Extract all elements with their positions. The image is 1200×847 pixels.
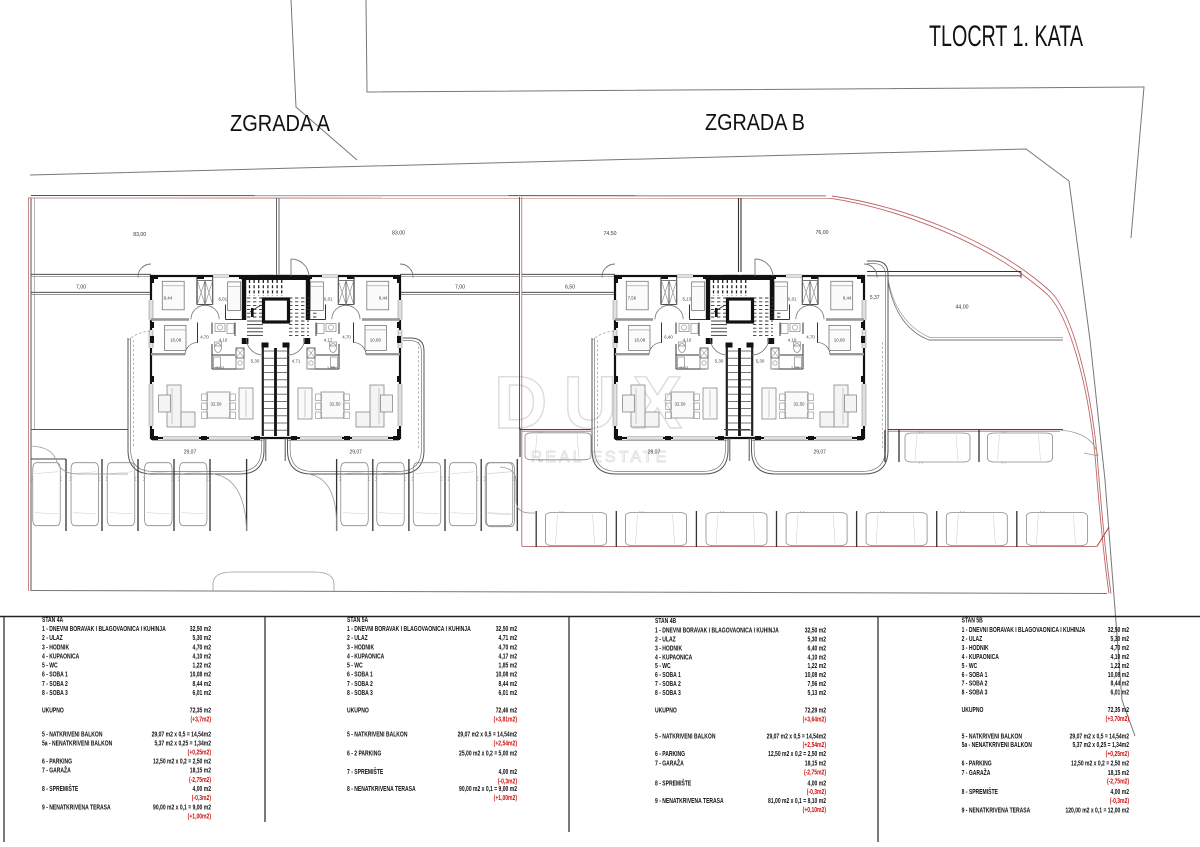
svg-text:32,50 m2: 32,50 m2 [496, 625, 518, 633]
svg-text:4,70: 4,70 [806, 335, 815, 340]
svg-text:10,08: 10,08 [834, 337, 846, 342]
svg-text:44,00: 44,00 [956, 305, 969, 311]
svg-text:3 - HODNIK: 3 - HODNIK [655, 645, 683, 653]
svg-text:7 - SPREMIŠTE: 7 - SPREMIŠTE [347, 767, 383, 776]
svg-text:29,07 m2 x 0,5 = 14,54m2: 29,07 m2 x 0,5 = 14,54m2 [1070, 733, 1130, 741]
svg-text:6 - 2 PARKING: 6 - 2 PARKING [347, 750, 381, 758]
svg-text:18,15 m2: 18,15 m2 [1108, 769, 1130, 777]
svg-text:7 - SOBA 2: 7 - SOBA 2 [655, 680, 681, 688]
svg-text:1 - DNEVNI BORAVAK I BLAGOVAON: 1 - DNEVNI BORAVAK I BLAGOVAONICA I KUHI… [655, 627, 779, 635]
svg-text:4,70: 4,70 [200, 335, 209, 340]
svg-text:5 - NATKRIVENI BALKON: 5 - NATKRIVENI BALKON [962, 733, 1022, 741]
svg-text:6,01: 6,01 [219, 297, 228, 302]
svg-text:32,50: 32,50 [794, 402, 806, 407]
svg-text:18,15 m2: 18,15 m2 [190, 767, 212, 775]
svg-text:(+0,25m2): (+0,25m2) [1106, 750, 1129, 758]
svg-text:(+3,7m2): (+3,7m2) [190, 716, 211, 724]
svg-text:6,01 m2: 6,01 m2 [499, 689, 518, 697]
svg-text:10,08: 10,08 [634, 337, 646, 342]
svg-text:8 - SPREMIŠTE: 8 - SPREMIŠTE [42, 784, 78, 793]
svg-text:4,71: 4,71 [292, 359, 301, 364]
svg-text:81,00 m2 x 0,1 = 8,10 m2: 81,00 m2 x 0,1 = 8,10 m2 [768, 797, 826, 805]
svg-text:7 - GARAŽA: 7 - GARAŽA [42, 766, 71, 775]
svg-text:10,08 m2: 10,08 m2 [190, 671, 212, 679]
svg-text:(+3,70m2): (+3,70m2) [1106, 715, 1129, 723]
svg-text:6 - SOBA 1: 6 - SOBA 1 [655, 671, 681, 679]
svg-text:8 - NENATKRIVENA TERASA: 8 - NENATKRIVENA TERASA [347, 785, 416, 793]
svg-text:UKUPNO: UKUPNO [655, 707, 677, 715]
svg-text:2 - ULAZ: 2 - ULAZ [42, 634, 63, 642]
svg-text:32,50: 32,50 [330, 402, 342, 407]
svg-text:6 - PARKING: 6 - PARKING [962, 760, 992, 768]
svg-text:4,70: 4,70 [342, 335, 351, 340]
svg-text:5,13: 5,13 [683, 297, 692, 302]
svg-text:1,85: 1,85 [327, 366, 336, 371]
svg-text:(-2,75m2): (-2,75m2) [804, 769, 826, 777]
svg-text:29,07 m2 x 0,5 = 14,54m2: 29,07 m2 x 0,5 = 14,54m2 [767, 733, 827, 741]
svg-text:9 - NENATKRIVENA TERASA: 9 - NENATKRIVENA TERASA [655, 797, 724, 805]
svg-text:ZGRADA A: ZGRADA A [230, 110, 331, 136]
svg-text:4,17 m2: 4,17 m2 [499, 653, 518, 661]
svg-text:6 - SOBA 1: 6 - SOBA 1 [962, 671, 988, 679]
svg-text:4,17: 4,17 [324, 338, 333, 343]
svg-text:4,00 m2: 4,00 m2 [1111, 788, 1130, 796]
svg-text:8,44: 8,44 [379, 296, 388, 301]
svg-text:9 - NENATKRIVENA TERASA: 9 - NENATKRIVENA TERASA [42, 804, 111, 812]
svg-text:12,50 m2 x 0,2 = 2,50 m2: 12,50 m2 x 0,2 = 2,50 m2 [153, 758, 211, 766]
svg-text:3 - HODNIK: 3 - HODNIK [347, 644, 375, 652]
svg-text:10,08 m2: 10,08 m2 [1108, 671, 1130, 679]
svg-text:5,37: 5,37 [870, 295, 880, 301]
svg-text:1,22: 1,22 [216, 366, 225, 371]
svg-text:6,01 m2: 6,01 m2 [1111, 689, 1130, 697]
svg-text:6,01: 6,01 [788, 297, 797, 302]
svg-text:7 - SOBA 2: 7 - SOBA 2 [42, 680, 68, 688]
svg-text:7 - GARAŽA: 7 - GARAŽA [962, 768, 991, 777]
svg-text:2 - ULAZ: 2 - ULAZ [962, 635, 983, 643]
svg-text:5 - NATKRIVENI BALKON: 5 - NATKRIVENI BALKON [655, 733, 715, 741]
svg-text:8 - SOBA 3: 8 - SOBA 3 [655, 689, 681, 697]
svg-text:4,00 m2: 4,00 m2 [499, 768, 518, 776]
svg-text:1,22: 1,22 [791, 366, 800, 371]
svg-text:5 - WC: 5 - WC [655, 662, 671, 670]
svg-text:4,10: 4,10 [219, 338, 228, 343]
svg-text:8 - SOBA 3: 8 - SOBA 3 [42, 689, 68, 697]
svg-text:6 - SOBA 1: 6 - SOBA 1 [42, 671, 68, 679]
svg-text:5 - NATKRIVENI BALKON: 5 - NATKRIVENI BALKON [347, 731, 407, 739]
svg-text:72,29 m2: 72,29 m2 [805, 707, 827, 715]
svg-text:6 - PARKING: 6 - PARKING [655, 750, 685, 758]
svg-text:5,30: 5,30 [251, 359, 260, 364]
svg-text:8,44 m2: 8,44 m2 [1111, 680, 1130, 688]
svg-text:5,30 m2: 5,30 m2 [1111, 635, 1130, 643]
svg-text:4,10 m2: 4,10 m2 [1111, 653, 1130, 661]
svg-text:8 - SOBA 3: 8 - SOBA 3 [962, 689, 988, 697]
svg-text:4,10 m2: 4,10 m2 [193, 653, 212, 661]
svg-text:(+3,64m2): (+3,64m2) [803, 716, 826, 724]
svg-text:6 - SOBA 1: 6 - SOBA 1 [347, 671, 373, 679]
svg-text:1,22 m2: 1,22 m2 [193, 662, 212, 670]
svg-text:STAN 4B: STAN 4B [655, 617, 677, 625]
svg-text:(-0,3m2): (-0,3m2) [1110, 797, 1129, 805]
svg-text:7 - GARAŽA: 7 - GARAŽA [655, 759, 684, 768]
svg-text:32,50 m2: 32,50 m2 [190, 625, 212, 633]
svg-text:29,07: 29,07 [349, 450, 362, 456]
svg-text:1,85 m2: 1,85 m2 [499, 662, 518, 670]
svg-text:7,56 m2: 7,56 m2 [808, 680, 827, 688]
svg-text:5,30: 5,30 [715, 359, 724, 364]
svg-text:10,08: 10,08 [170, 337, 182, 342]
svg-text:83,00: 83,00 [133, 232, 146, 238]
svg-text:5 - WC: 5 - WC [347, 662, 363, 670]
svg-text:29,07 m2 x 0,5 = 14,54m2: 29,07 m2 x 0,5 = 14,54m2 [152, 731, 212, 739]
svg-text:6 - PARKING: 6 - PARKING [42, 758, 72, 766]
svg-text:4,70 m2: 4,70 m2 [499, 644, 518, 652]
svg-text:5,37 m2 x 0,25 = 1,34m2: 5,37 m2 x 0,25 = 1,34m2 [154, 740, 211, 748]
svg-text:120,00 m2 x 0,1 = 12,00 m2: 120,00 m2 x 0,1 = 12,00 m2 [1065, 807, 1129, 815]
svg-text:1 - DNEVNI BORAVAK I BLAGOVAON: 1 - DNEVNI BORAVAK I BLAGOVAONICA I KUHI… [42, 625, 166, 633]
svg-text:3 - HODNIK: 3 - HODNIK [962, 644, 990, 652]
svg-text:6,01 m2: 6,01 m2 [193, 689, 212, 697]
svg-text:(+0,10m2): (+0,10m2) [803, 806, 826, 814]
svg-text:4 - KUPAONICA: 4 - KUPAONICA [655, 654, 693, 662]
svg-text:12,50 m2 x 0,2 = 2,50 m2: 12,50 m2 x 0,2 = 2,50 m2 [768, 750, 826, 758]
svg-text:6,40: 6,40 [664, 335, 673, 340]
svg-text:4 - KUPAONICA: 4 - KUPAONICA [347, 653, 385, 661]
svg-text:(+1,00m2): (+1,00m2) [188, 813, 211, 821]
svg-text:9 - NENATKRIVENA TERASA: 9 - NENATKRIVENA TERASA [962, 807, 1031, 815]
svg-text:1,22 m2: 1,22 m2 [1111, 662, 1130, 670]
svg-text:UKUPNO: UKUPNO [962, 706, 984, 714]
svg-text:8 - SPREMIŠTE: 8 - SPREMIŠTE [962, 787, 998, 796]
svg-text:8,44: 8,44 [843, 296, 852, 301]
svg-text:TLOCRT 1. KATA: TLOCRT 1. KATA [929, 20, 1083, 53]
svg-text:1 - DNEVNI BORAVAK I BLAGOVAON: 1 - DNEVNI BORAVAK I BLAGOVAONICA I KUHI… [962, 626, 1086, 634]
svg-text:(+3,81m2): (+3,81m2) [494, 716, 517, 724]
svg-text:1 - DNEVNI BORAVAK I BLAGOVAON: 1 - DNEVNI BORAVAK I BLAGOVAONICA I KUHI… [347, 625, 471, 633]
svg-text:5,13 m2: 5,13 m2 [808, 689, 827, 697]
svg-text:4,00 m2: 4,00 m2 [193, 785, 212, 793]
svg-text:29,07: 29,07 [648, 450, 661, 456]
svg-text:32,50: 32,50 [675, 402, 687, 407]
svg-text:2 - ULAZ: 2 - ULAZ [655, 636, 676, 644]
svg-text:ZGRADA B: ZGRADA B [705, 109, 805, 135]
svg-text:STAN 4A: STAN 4A [42, 616, 64, 624]
svg-text:2 - ULAZ: 2 - ULAZ [347, 634, 368, 642]
svg-text:(-2,75m2): (-2,75m2) [1107, 778, 1129, 786]
svg-text:72,35 m2: 72,35 m2 [1108, 706, 1130, 714]
svg-text:4,70 m2: 4,70 m2 [193, 644, 212, 652]
svg-text:5a - NENATKRIVENI BALKON: 5a - NENATKRIVENI BALKON [42, 740, 112, 748]
svg-text:29,07 m2 x 0,5 = 14,54m2: 29,07 m2 x 0,5 = 14,54m2 [458, 731, 518, 739]
svg-text:8,44 m2: 8,44 m2 [193, 680, 212, 688]
svg-text:(+1,00m2): (+1,00m2) [494, 794, 517, 802]
svg-text:72,35 m2: 72,35 m2 [190, 707, 212, 715]
svg-text:UKUPNO: UKUPNO [42, 707, 64, 715]
svg-text:8,44 m2: 8,44 m2 [499, 680, 518, 688]
svg-text:90,00 m2 x 0,1 = 9,00 m2: 90,00 m2 x 0,1 = 9,00 m2 [459, 785, 517, 793]
svg-text:(-2,75m2): (-2,75m2) [189, 776, 211, 784]
svg-text:(+0,25m2): (+0,25m2) [188, 749, 211, 757]
svg-text:5 - WC: 5 - WC [42, 662, 58, 670]
svg-text:90,00 m2 x 0,1 = 9,00 m2: 90,00 m2 x 0,1 = 9,00 m2 [153, 804, 211, 812]
svg-text:8 - SPREMIŠTE: 8 - SPREMIŠTE [655, 779, 691, 788]
svg-text:83,00: 83,00 [392, 231, 405, 237]
svg-text:1,22: 1,22 [680, 366, 689, 371]
svg-text:8,44: 8,44 [164, 296, 173, 301]
svg-text:7 - SOBA 2: 7 - SOBA 2 [962, 680, 988, 688]
svg-text:10,08 m2: 10,08 m2 [805, 671, 827, 679]
svg-text:5 - NATKRIVENI BALKON: 5 - NATKRIVENI BALKON [42, 731, 102, 739]
svg-text:6,40 m2: 6,40 m2 [808, 645, 827, 653]
svg-text:STAN 5A: STAN 5A [347, 616, 369, 624]
svg-text:32,50 m2: 32,50 m2 [805, 627, 827, 635]
svg-text:5,30 m2: 5,30 m2 [193, 634, 212, 642]
svg-text:5a - NENATKRIVENI BALKON: 5a - NENATKRIVENI BALKON [962, 741, 1032, 749]
svg-text:STAN 5B: STAN 5B [962, 617, 984, 625]
svg-text:74,50: 74,50 [604, 231, 617, 237]
svg-text:4,10 m2: 4,10 m2 [808, 654, 827, 662]
svg-text:29,07: 29,07 [184, 450, 197, 456]
svg-text:8 - SOBA 3: 8 - SOBA 3 [347, 689, 373, 697]
svg-text:10,08 m2: 10,08 m2 [496, 671, 518, 679]
svg-text:(+2,54m2): (+2,54m2) [803, 741, 826, 749]
svg-text:4,00 m2: 4,00 m2 [808, 780, 827, 788]
svg-text:(-0,3m2): (-0,3m2) [807, 788, 826, 796]
svg-text:32,50: 32,50 [211, 402, 223, 407]
svg-text:4 - KUPAONICA: 4 - KUPAONICA [962, 653, 1000, 661]
svg-text:4 - KUPAONICA: 4 - KUPAONICA [42, 653, 80, 661]
svg-text:5,30 m2: 5,30 m2 [808, 636, 827, 644]
svg-text:7,56: 7,56 [628, 296, 637, 301]
svg-text:72,46 m2: 72,46 m2 [496, 707, 518, 715]
svg-text:4,70 m2: 4,70 m2 [1111, 644, 1130, 652]
svg-text:7,00: 7,00 [76, 285, 86, 291]
svg-text:29,07: 29,07 [813, 450, 826, 456]
svg-text:UKUPNO: UKUPNO [347, 707, 369, 715]
svg-text:7,00: 7,00 [455, 285, 465, 291]
svg-text:7 - SOBA 2: 7 - SOBA 2 [347, 680, 373, 688]
svg-text:3 - HODNIK: 3 - HODNIK [42, 644, 70, 652]
svg-text:6,50: 6,50 [565, 285, 575, 291]
svg-text:(-0,3m2): (-0,3m2) [192, 794, 211, 802]
svg-text:(+2,54m2): (+2,54m2) [494, 740, 517, 748]
svg-text:25,00 m2 x 0,2 = 5,00 m2: 25,00 m2 x 0,2 = 5,00 m2 [459, 750, 517, 758]
svg-text:4,71 m2: 4,71 m2 [499, 634, 518, 642]
svg-text:4,10: 4,10 [788, 338, 797, 343]
svg-text:12,50 m2 x 0,2 = 2,50 m2: 12,50 m2 x 0,2 = 2,50 m2 [1071, 760, 1129, 768]
svg-text:4,10: 4,10 [683, 338, 692, 343]
svg-text:1,22 m2: 1,22 m2 [808, 662, 827, 670]
svg-text:6,01: 6,01 [324, 297, 333, 302]
svg-text:18,15 m2: 18,15 m2 [805, 760, 827, 768]
svg-text:5 - WC: 5 - WC [962, 662, 978, 670]
svg-text:10,08: 10,08 [370, 337, 382, 342]
svg-text:5,37 m2 x 0,25 = 1,34m2: 5,37 m2 x 0,25 = 1,34m2 [1072, 741, 1129, 749]
svg-text:5,30: 5,30 [756, 359, 765, 364]
svg-text:32,50 m2: 32,50 m2 [1108, 626, 1130, 634]
svg-text:76,00: 76,00 [816, 230, 829, 236]
